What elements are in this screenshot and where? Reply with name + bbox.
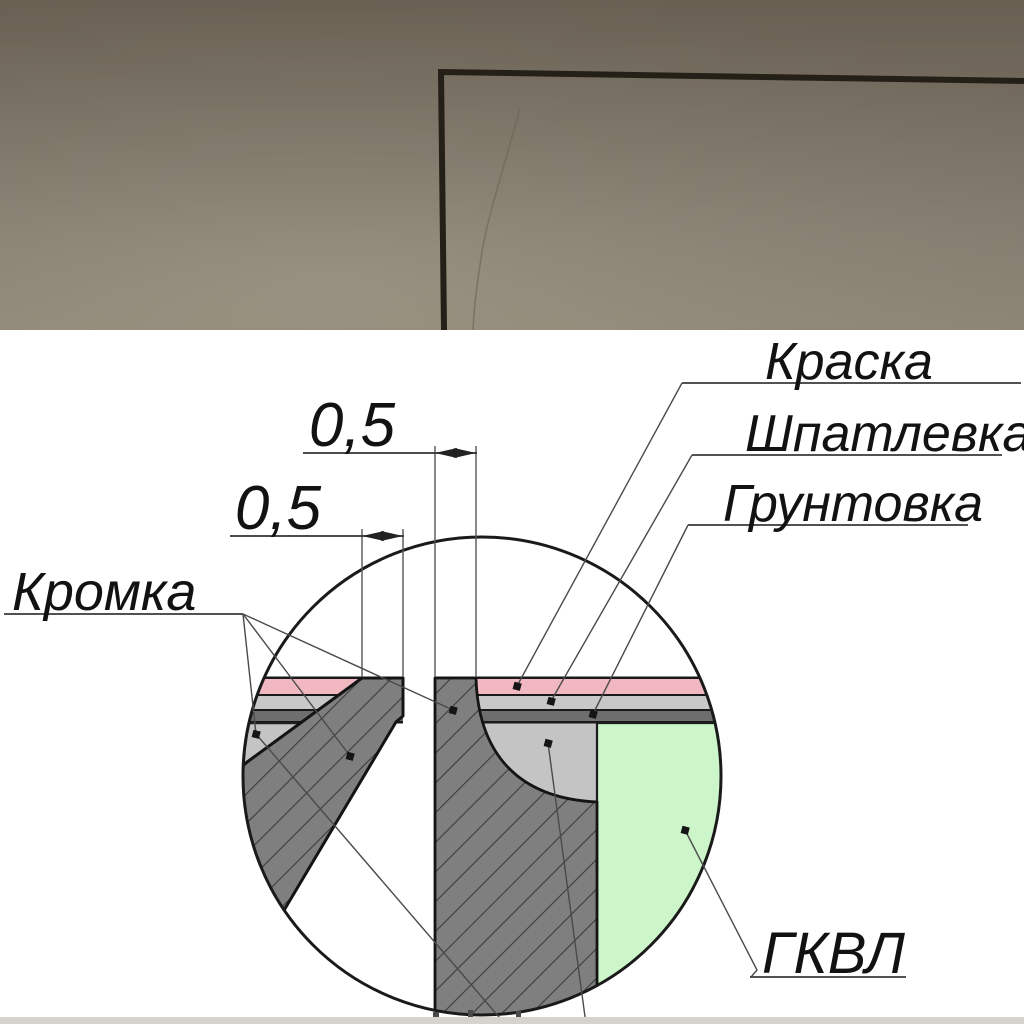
dimension-left-value: 0,5 bbox=[235, 474, 322, 543]
drywall-joint-figure: 0,5 0,5 bbox=[0, 0, 1024, 1024]
wall-photo bbox=[0, 0, 1024, 330]
dimension-left: 0,5 bbox=[230, 474, 404, 677]
arrowhead-left-icon bbox=[362, 531, 384, 541]
paint-leader-line bbox=[517, 383, 682, 686]
dimension-top-value: 0,5 bbox=[309, 391, 396, 460]
putty-leader-line bbox=[551, 455, 692, 701]
paint-label: Краска bbox=[765, 333, 933, 391]
cutoff-letter-top bbox=[433, 1012, 439, 1017]
cutoff-letter-top bbox=[516, 1011, 521, 1017]
bottom-strip bbox=[0, 1017, 1024, 1024]
detail-circle-content bbox=[210, 677, 725, 1021]
primer-label: Грунтовка bbox=[723, 475, 983, 533]
arrowhead-right-icon bbox=[381, 531, 403, 541]
paint-layer-right bbox=[435, 679, 725, 694]
board-label: ГКВЛ bbox=[762, 921, 905, 986]
arrowhead-left-icon bbox=[435, 448, 457, 458]
board-leader-line bbox=[685, 830, 757, 977]
screenshot-root: 0,5 0,5 bbox=[0, 0, 1024, 1024]
cutoff-letter-top bbox=[468, 1010, 473, 1017]
edge-label: Кромка bbox=[12, 562, 196, 622]
surface-line-right bbox=[435, 677, 725, 680]
putty-label: Шпатлевка bbox=[745, 405, 1024, 463]
arrowhead-right-icon bbox=[454, 448, 476, 458]
wall-photo-vignette bbox=[0, 0, 1024, 330]
